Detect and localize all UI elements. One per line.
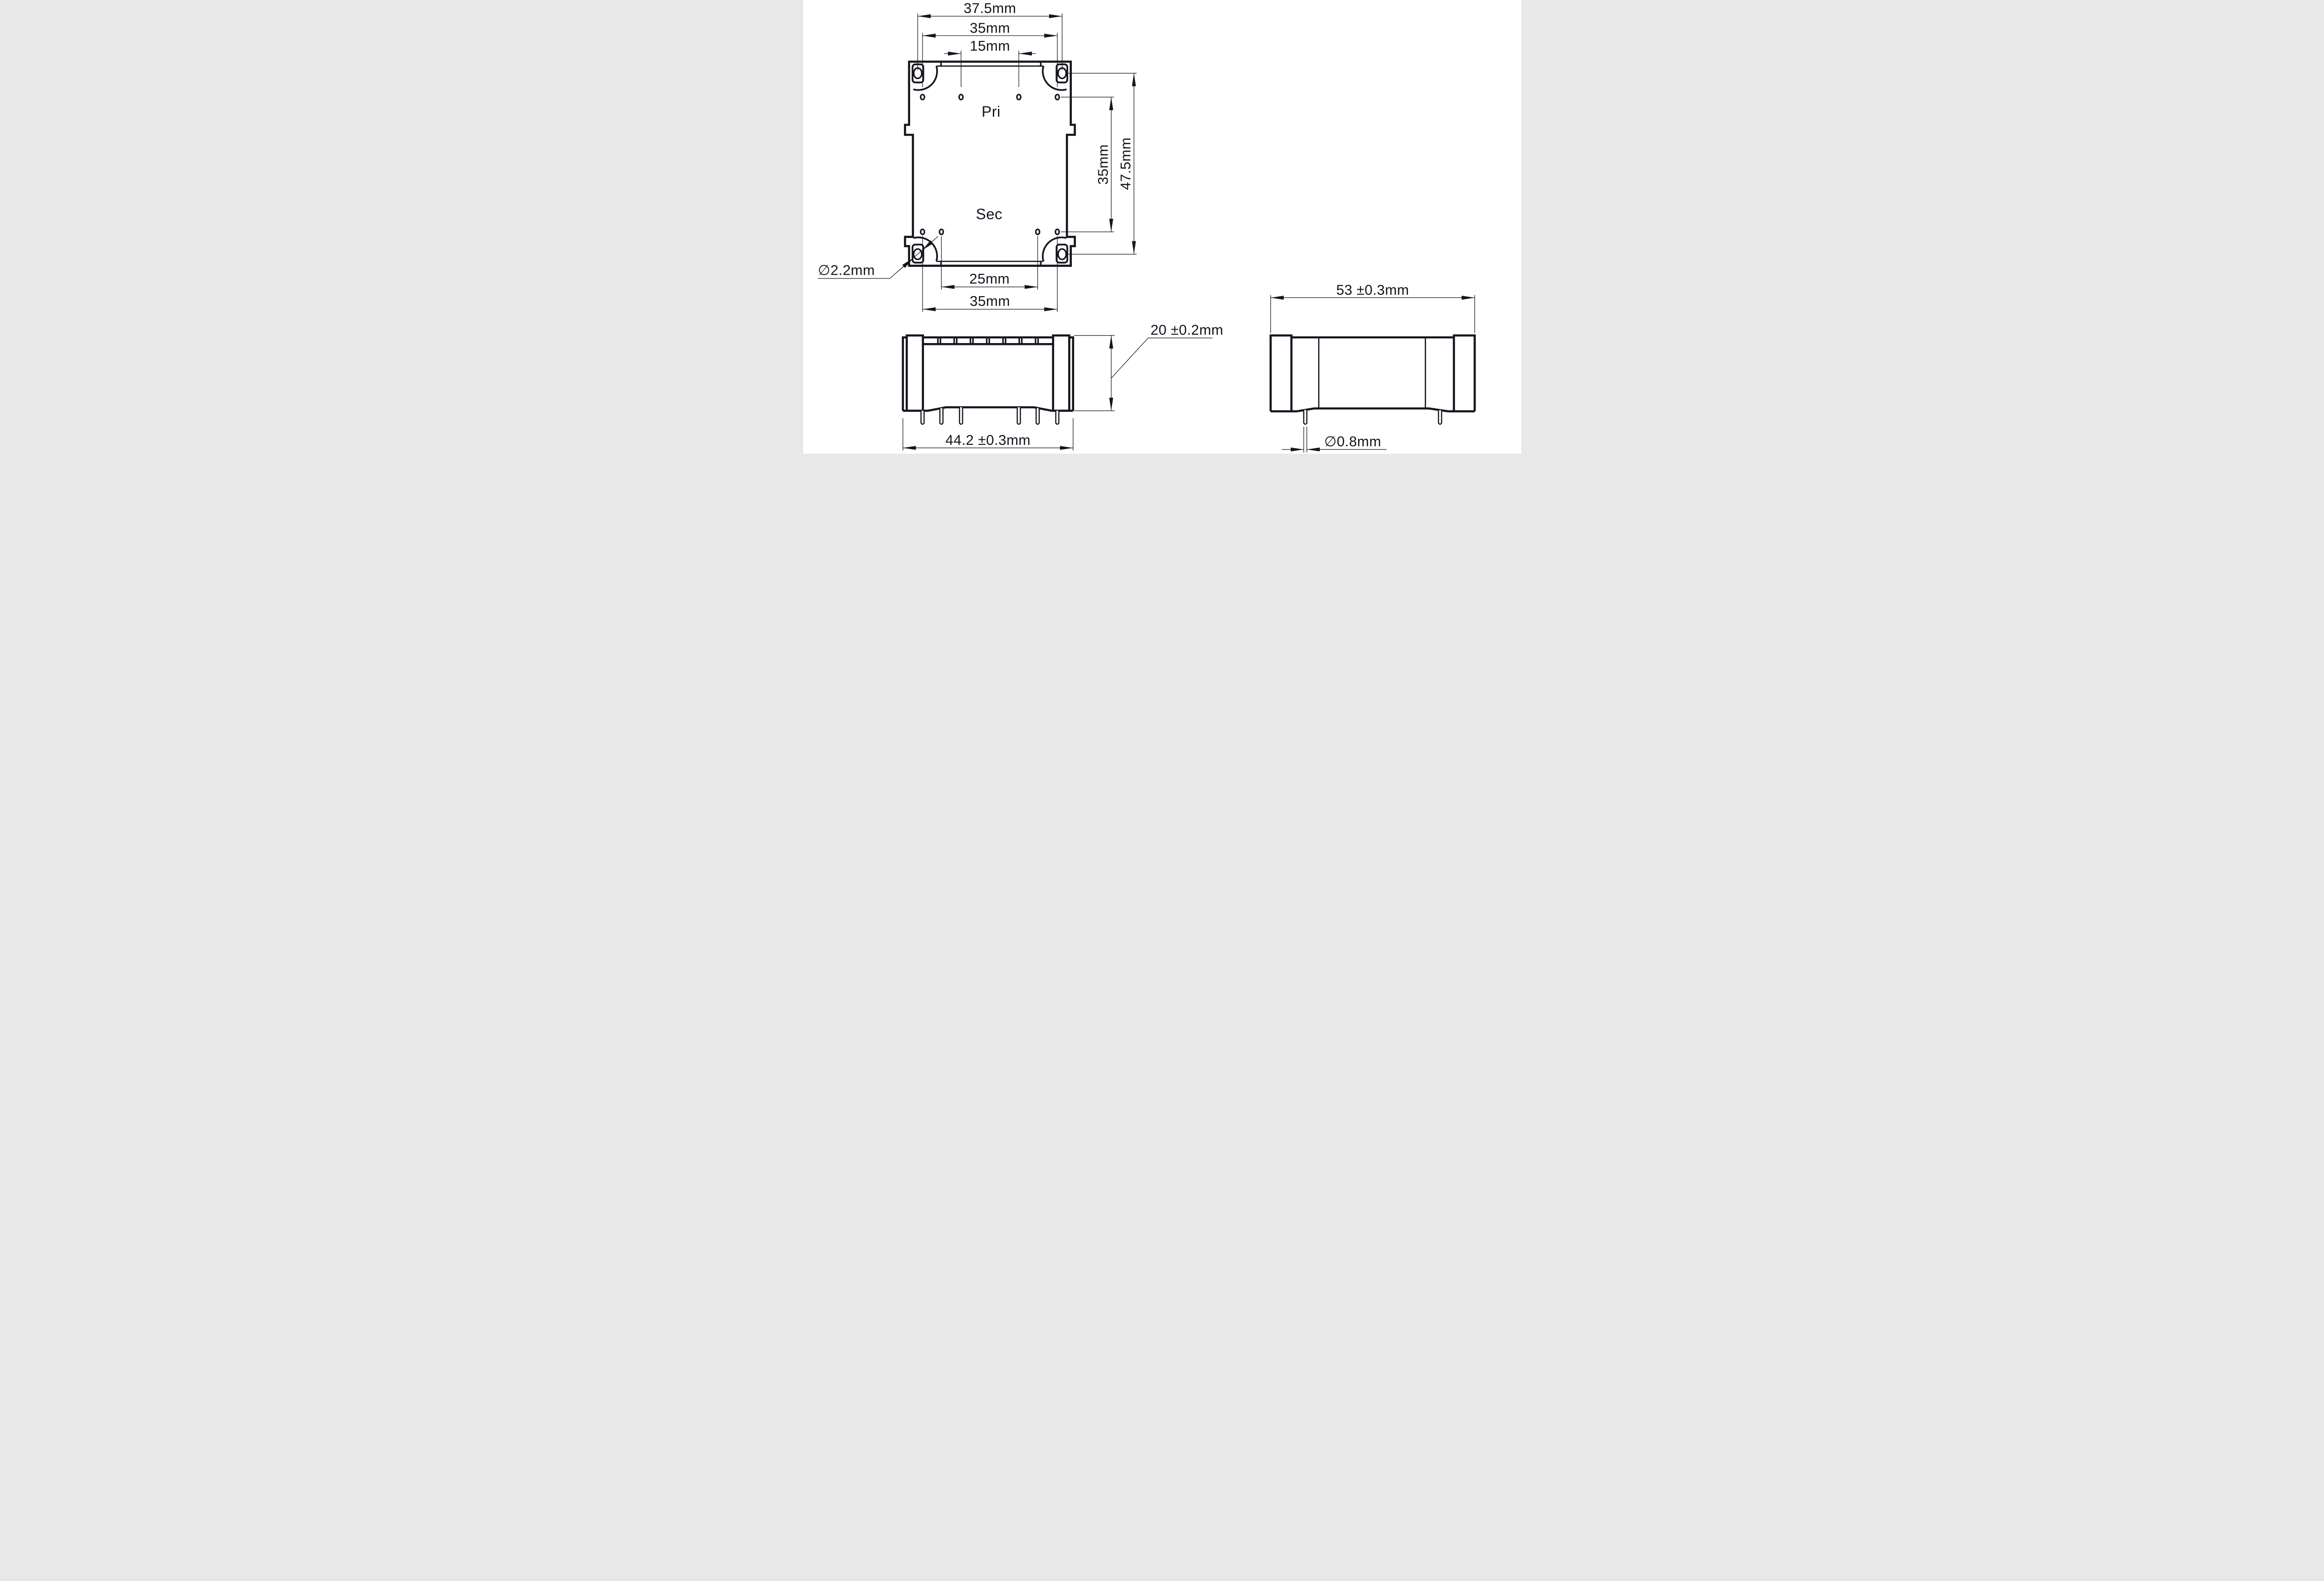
front-view: 44.2 ±0.3mm 20 ±0.2mm — [903, 322, 1223, 450]
sec-pin-hole-2 — [939, 229, 943, 234]
front-band-edges — [923, 337, 1053, 344]
dim-sec-inner-pin-span: 25mm — [969, 271, 1010, 287]
dim-mount-hole-dia: ∅2.2mm — [818, 263, 875, 278]
drawing-page: Pri Sec 37.5mm 35mm 15mm 35mm 47.5mm 25m… — [803, 0, 1521, 454]
dim-front-body-height: 20 ±0.2mm — [1150, 322, 1223, 338]
dim-front-body-width: 44.2 ±0.3mm — [945, 432, 1030, 448]
dim-20-leader — [1111, 338, 1212, 378]
hole-dia-arrow-upper — [922, 240, 934, 251]
side-center-bottom — [1297, 409, 1448, 411]
front-right-post — [1053, 336, 1069, 411]
dim-pri-outer-pin-span: 35mm — [970, 20, 1010, 36]
label-secondary: Sec — [976, 205, 1002, 222]
front-pin-5 — [1036, 408, 1039, 424]
front-pin-4 — [1017, 407, 1020, 424]
front-pin-3 — [959, 407, 963, 424]
dim-mount-hole-row-span: 47.5mm — [1118, 138, 1134, 190]
dim-side-pin-dia: ∅0.8mm — [1324, 434, 1381, 450]
front-bottom-profile — [903, 407, 1073, 410]
ext-lines-pin-dia — [1303, 427, 1307, 453]
side-view: 53 ±0.3mm ∅0.8mm — [1270, 282, 1474, 453]
ext-lines-side-width — [1270, 295, 1474, 333]
edge-ticks — [941, 62, 1041, 266]
side-right-flange — [1448, 336, 1474, 411]
pri-pin-hole-3 — [1017, 94, 1020, 99]
sec-pin-hole-4 — [1055, 229, 1059, 234]
top-view: Pri Sec 37.5mm 35mm 15mm 35mm 47.5mm 25m… — [818, 0, 1136, 312]
side-core-edges — [1319, 337, 1425, 409]
front-pin-2 — [940, 408, 943, 424]
mount-hole-bottom-right — [1058, 249, 1066, 259]
front-left-post — [906, 336, 923, 411]
hole-dia-arrow-lower — [899, 258, 913, 270]
pri-pin-hole-1 — [920, 94, 924, 99]
boss-fillet-arcs — [913, 66, 1066, 261]
dim-sec-outer-pin-span: 35mm — [970, 293, 1010, 309]
dim-mount-hole-span: 37.5mm — [964, 0, 1016, 16]
dim-pri-inner-pin-span: 15mm — [970, 38, 1010, 54]
front-pin-1 — [921, 411, 924, 424]
ext-lines-front-height — [1074, 336, 1115, 411]
side-pin-1 — [1303, 410, 1307, 424]
front-pin-6 — [1056, 411, 1059, 424]
pri-pin-hole-4 — [1055, 94, 1059, 99]
sec-pin-hole-3 — [1036, 229, 1039, 234]
dim-pin-row-span: 35mm — [1095, 144, 1111, 185]
sec-pin-hole-1 — [920, 229, 924, 234]
side-left-flange — [1270, 336, 1296, 411]
dim-side-body-width: 53 ±0.3mm — [1336, 282, 1409, 298]
label-primary: Pri — [981, 103, 1000, 120]
transformer-dimension-drawing: Pri Sec 37.5mm 35mm 15mm 35mm 47.5mm 25m… — [803, 0, 1521, 454]
pri-pin-hole-2 — [959, 94, 963, 99]
side-pin-2 — [1438, 410, 1441, 424]
top-view-body-outline — [905, 62, 1075, 266]
